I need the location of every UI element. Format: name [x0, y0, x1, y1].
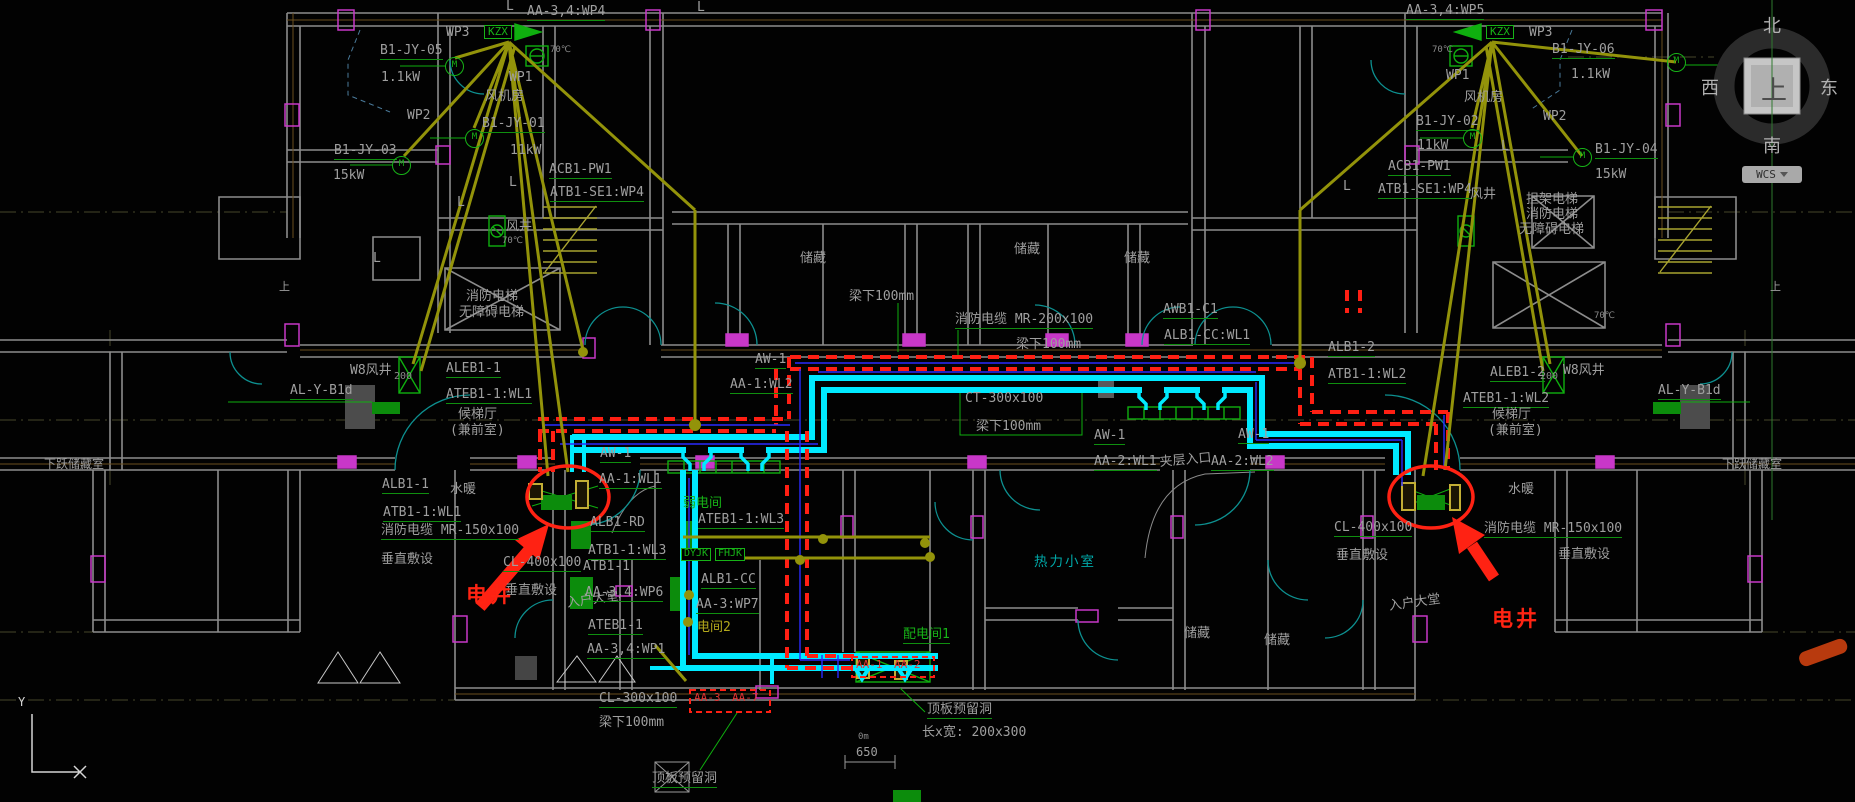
columns	[91, 10, 1762, 698]
door-triangles	[318, 652, 895, 792]
cad-viewport[interactable]: LLAA-3,4:WP4WP3KZX70℃B1-JY-051.1kWWP1风机房…	[0, 0, 1855, 802]
floor-plan-canvas[interactable]	[0, 0, 1855, 802]
viewcube-north[interactable]: 北	[1763, 12, 1781, 38]
wcs-dropdown[interactable]: WCS	[1742, 166, 1802, 183]
viewcube-south[interactable]: 南	[1763, 132, 1781, 158]
chevron-down-icon	[1780, 172, 1788, 177]
ucs-icon	[32, 714, 86, 778]
wall-inner-lines	[0, 13, 1855, 694]
walls	[0, 13, 1855, 700]
viewcube-west[interactable]: 西	[1701, 74, 1719, 100]
equipment-green	[228, 24, 1750, 770]
khaki-boxes	[529, 481, 1460, 679]
viewcube-east[interactable]: 东	[1820, 74, 1838, 100]
viewcube-top-label[interactable]: 上	[1761, 70, 1787, 107]
equipment-green-fills	[372, 402, 1681, 802]
fire-tray-red	[538, 290, 1448, 668]
wires-blue	[545, 363, 1444, 678]
wcs-label: WCS	[1756, 168, 1776, 181]
feeders-olive	[404, 42, 1676, 681]
